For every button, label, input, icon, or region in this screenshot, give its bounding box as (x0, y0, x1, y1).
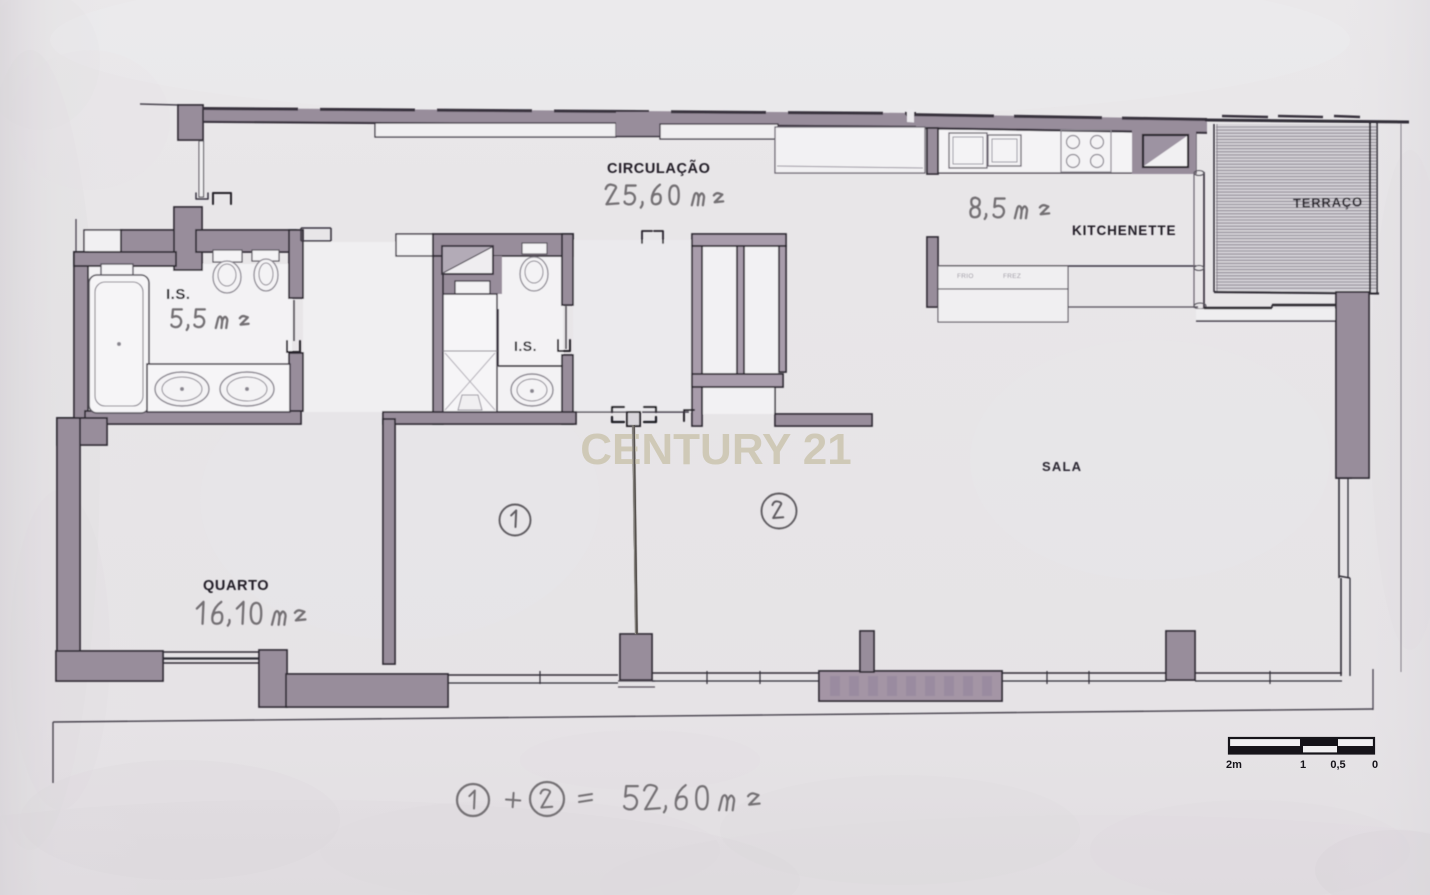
svg-text:0: 0 (1372, 759, 1378, 771)
svg-text:KITCHENETTE: KITCHENETTE (1072, 223, 1176, 238)
svg-text:I.S.: I.S. (514, 338, 537, 354)
svg-text:1: 1 (1300, 759, 1306, 771)
svg-text:QUARTO: QUARTO (203, 578, 269, 594)
svg-text:SALA: SALA (1042, 459, 1082, 474)
svg-text:CENTURY 21: CENTURY 21 (580, 425, 851, 474)
svg-text:FREZ: FREZ (1003, 273, 1021, 280)
svg-text:0,5: 0,5 (1330, 759, 1345, 771)
svg-text:CIRCULAÇÃO: CIRCULAÇÃO (607, 159, 710, 177)
svg-text:FRIO: FRIO (957, 273, 974, 280)
svg-text:TERRAÇO: TERRAÇO (1293, 194, 1363, 210)
svg-text:I.S.: I.S. (166, 286, 191, 303)
svg-text:2m: 2m (1226, 759, 1242, 771)
